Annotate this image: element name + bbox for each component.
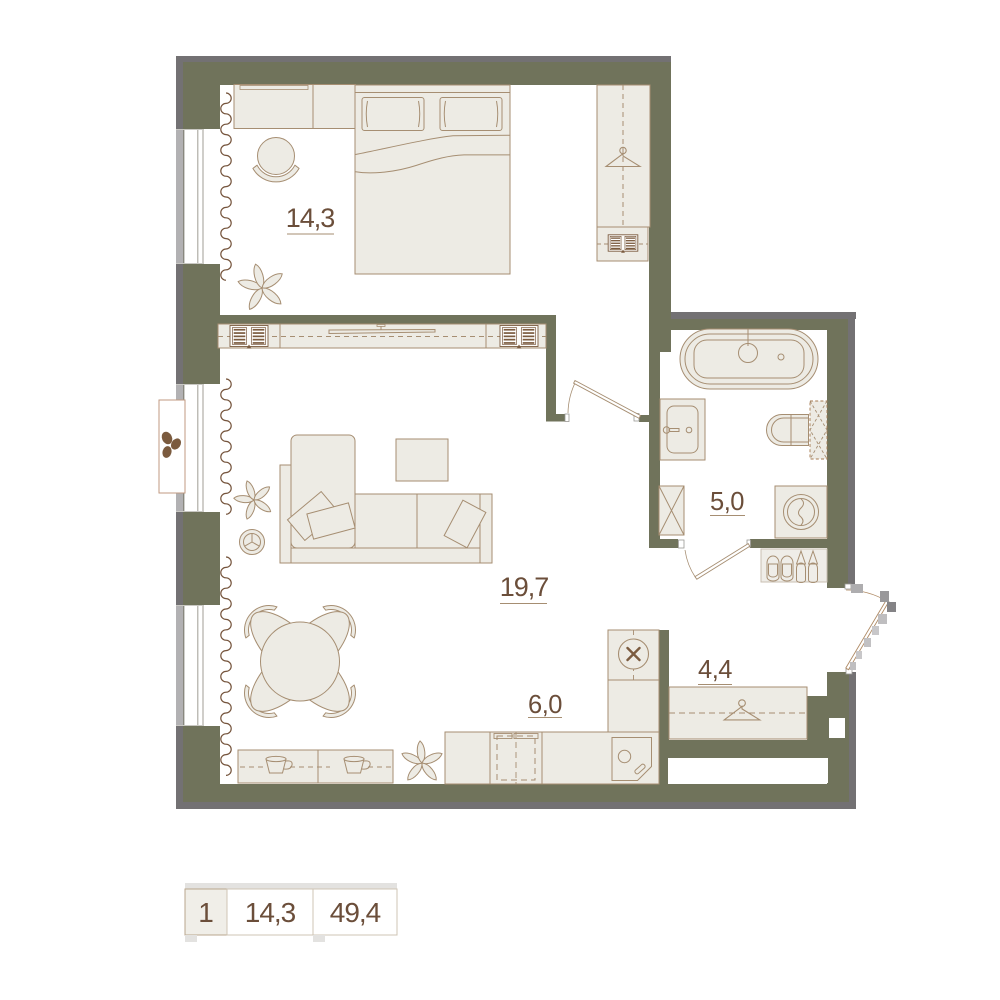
- svg-text:49,4: 49,4: [330, 897, 381, 928]
- svg-text:19,7: 19,7: [500, 572, 549, 602]
- svg-text:14,3: 14,3: [286, 203, 335, 233]
- svg-text:14,3: 14,3: [245, 897, 296, 928]
- svg-text:4,4: 4,4: [698, 656, 732, 684]
- svg-text:6,0: 6,0: [528, 691, 562, 719]
- svg-text:5,0: 5,0: [710, 488, 744, 516]
- svg-text:1: 1: [198, 897, 214, 928]
